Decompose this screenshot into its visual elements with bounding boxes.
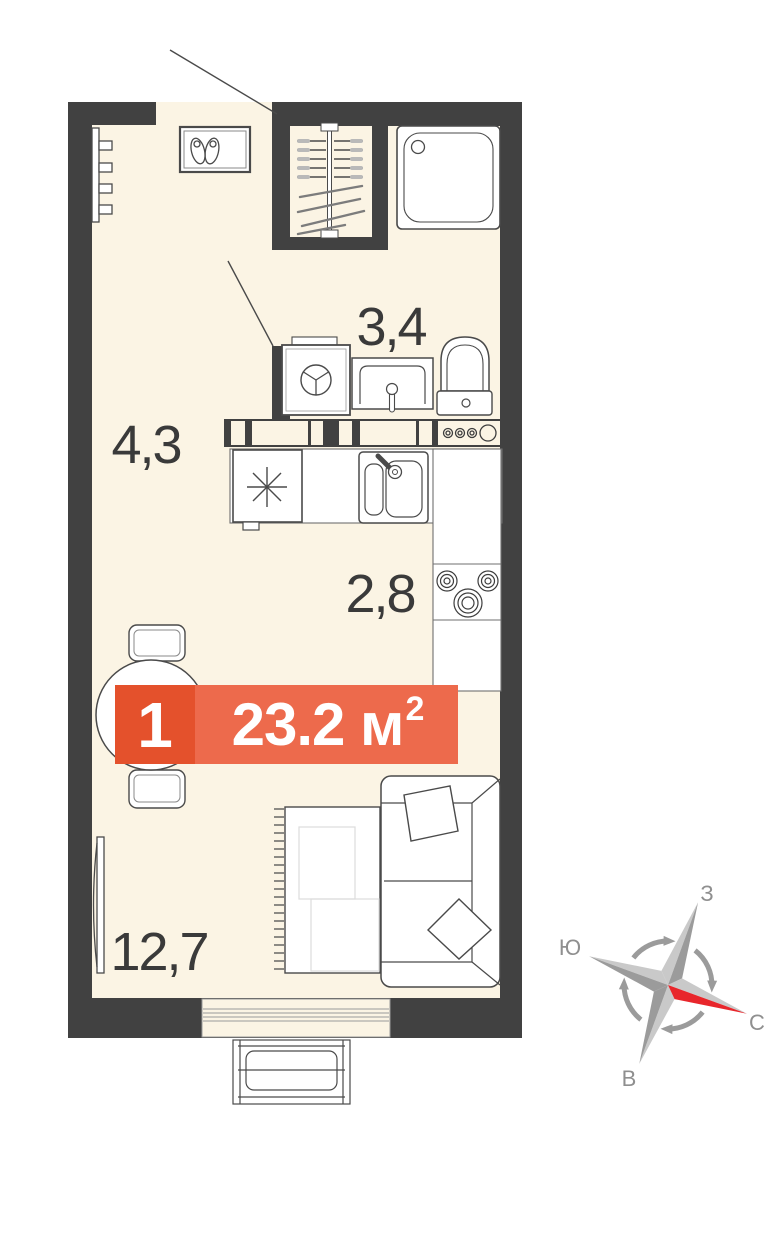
- area-label-bathroom: 3,4: [356, 296, 425, 358]
- total-area-badge: 23.2 м2: [195, 685, 458, 764]
- sink-faucet: [387, 384, 398, 395]
- washing-machine: [282, 337, 350, 415]
- compass-north-label: С: [749, 1010, 765, 1035]
- wall-top: [275, 102, 522, 126]
- rug: [274, 807, 380, 973]
- chair-top: [129, 625, 185, 661]
- radiator: [438, 421, 500, 445]
- apartment-badge: 1 23.2 м2: [115, 685, 458, 764]
- window: [202, 999, 390, 1037]
- toilet: [437, 337, 492, 415]
- sofa: [381, 776, 500, 987]
- bathroom-sink: [352, 358, 433, 412]
- compass-east-label: В: [622, 1066, 637, 1091]
- rug-fringe: [274, 809, 284, 969]
- compass-star: [560, 874, 768, 1093]
- area-label-kitchen: 2,8: [345, 563, 414, 625]
- compass-west-label: З: [700, 881, 713, 906]
- total-area-value: 23.2 м: [232, 690, 404, 759]
- wall-wardrobe-right: [372, 118, 388, 250]
- snowflake-icon: [247, 467, 287, 507]
- compass-north-red: [664, 985, 747, 1024]
- balcony: [233, 1040, 350, 1104]
- wall-wardrobe-bottom: [272, 237, 388, 250]
- floor-plan-page: З Ю С В 3,4 4,3 2,8 12,7 1 23.2 м2: [0, 0, 768, 1241]
- wall-top-left-stub: [68, 102, 156, 125]
- chair-bottom: [129, 770, 185, 808]
- area-label-hallway: 4,3: [111, 414, 180, 476]
- sofa-pillow: [404, 786, 458, 841]
- compass: З Ю С В: [559, 874, 768, 1093]
- fridge: [233, 450, 302, 530]
- wall-right: [500, 102, 522, 1038]
- rooms-count-badge: 1: [115, 685, 195, 764]
- wall-wardrobe-left: [272, 102, 290, 250]
- wall-left: [68, 102, 92, 1038]
- kitchen-sink: [359, 452, 428, 523]
- compass-south-label: Ю: [559, 935, 581, 960]
- shoe-cabinet: [180, 127, 250, 172]
- area-label-living-room: 12,7: [110, 921, 207, 983]
- shower: [397, 126, 500, 229]
